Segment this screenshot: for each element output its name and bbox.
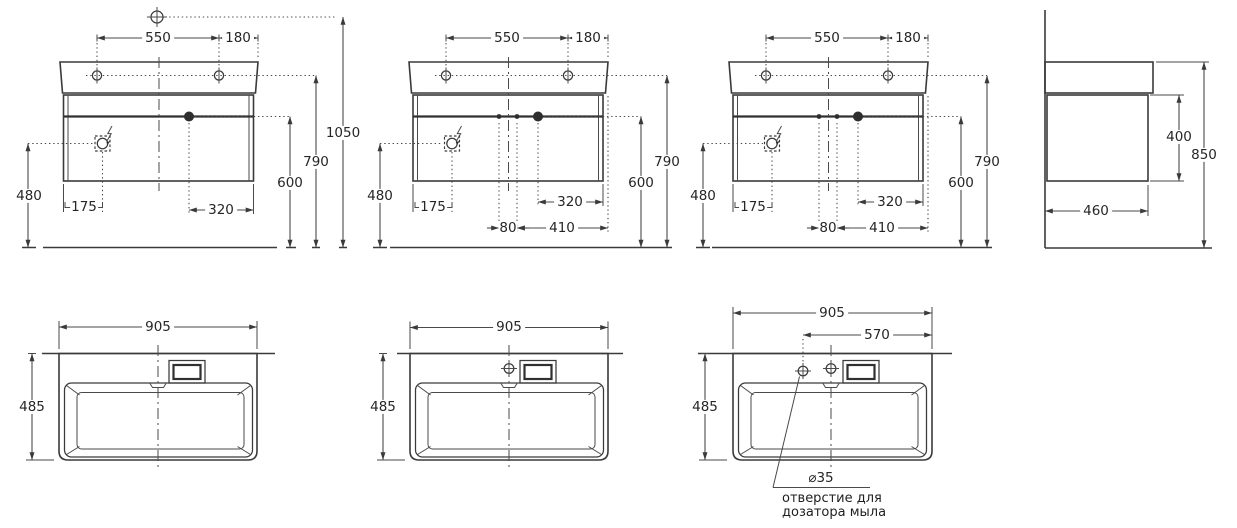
mount-dot-right <box>835 114 840 119</box>
dim-label-320-front1: 320 <box>205 203 237 217</box>
front-view-2 <box>373 35 672 248</box>
dim-label-905-top3: 905 <box>816 306 848 320</box>
dim-label-600-front1: 600 <box>274 176 306 190</box>
dim-label-410-front3: 410 <box>866 221 898 235</box>
mount-dot-left <box>497 114 502 119</box>
overflow-slot <box>823 384 839 388</box>
sink-profile <box>1045 62 1153 93</box>
dim-label-600-front3: 600 <box>945 176 977 190</box>
dim-label-850-side: 850 <box>1188 148 1220 162</box>
dim-label-790-front1: 790 <box>300 155 332 169</box>
dim-label-175-front3: 175 <box>739 200 767 214</box>
drawing-linework <box>0 0 1237 528</box>
top-view-2 <box>377 322 623 470</box>
dim-label-600-front2: 600 <box>625 176 657 190</box>
cabinet-profile <box>1047 95 1148 181</box>
overflow-slot <box>501 384 517 388</box>
dim-label-320-front2: 320 <box>554 195 586 209</box>
dim-label-400-side: 400 <box>1163 130 1195 144</box>
drain-dot <box>853 112 863 122</box>
overflow-box-icon <box>169 361 205 384</box>
dim-label-1050-front1: 1050 <box>323 126 363 140</box>
dim-label-485-top3: 485 <box>689 400 721 414</box>
soap-dispenser-hole-icon <box>795 363 811 379</box>
soap-dispenser-note-line2: дозатора мыла <box>782 506 886 520</box>
technical-drawing: 550 180 1050 790 600 480 175 320 550 180… <box>0 0 1237 528</box>
top-view-1-dimensions <box>26 321 257 460</box>
dim-label-790-front3: 790 <box>971 155 1003 169</box>
dim-label-480-front2: 480 <box>364 189 396 203</box>
soap-dispenser-note: отверстие для дозатора мыла <box>782 492 886 519</box>
overflow-slot <box>150 384 166 388</box>
top-view-2-dimensions <box>377 322 608 461</box>
basin-floor <box>751 393 918 450</box>
top-view-1 <box>26 321 275 469</box>
dim-label-790-front2: 790 <box>651 155 683 169</box>
dim-label-80-front2: 80 <box>498 221 517 235</box>
dim-label-480-front1: 480 <box>13 189 45 203</box>
mount-dot-left <box>817 114 822 119</box>
basin-floor <box>77 393 244 450</box>
dim-label-180-front1: 180 <box>222 31 254 45</box>
dim-label-175-front2: 175 <box>419 200 447 214</box>
front-view-3-dimensions <box>696 35 992 248</box>
dim-label-320-front3: 320 <box>874 195 906 209</box>
dim-label-905-top2: 905 <box>493 320 525 334</box>
drain-dot <box>184 112 194 122</box>
dim-label-hole-diameter: ⌀35 <box>805 471 836 485</box>
overflow-box-icon <box>843 361 879 384</box>
dim-label-480-front3: 480 <box>687 189 719 203</box>
leader-line <box>773 377 800 488</box>
basin-rim <box>739 383 927 457</box>
dim-label-550-front1: 550 <box>142 31 174 45</box>
dim-label-550-front3: 550 <box>811 31 843 45</box>
dim-label-410-front2: 410 <box>546 221 578 235</box>
dim-label-460-side: 460 <box>1080 204 1112 218</box>
dim-label-175-front1: 175 <box>70 200 98 214</box>
front-view-3 <box>696 35 992 248</box>
drain-dot <box>533 112 543 122</box>
overflow-box-icon <box>520 361 556 384</box>
dim-label-905-top1: 905 <box>142 320 174 334</box>
sink-plan-outline <box>733 354 932 461</box>
dim-label-550-front2: 550 <box>491 31 523 45</box>
mirror-mount-icon <box>147 7 167 27</box>
dim-label-180-front3: 180 <box>892 31 924 45</box>
basin-corner-bevels <box>741 386 925 455</box>
mount-dot-right <box>515 114 520 119</box>
dim-label-80-front3: 80 <box>818 221 837 235</box>
dim-label-485-top2: 485 <box>367 400 399 414</box>
soap-dispenser-note-line1: отверстие для <box>782 492 886 506</box>
dim-label-485-top1: 485 <box>16 400 48 414</box>
dim-label-180-front2: 180 <box>572 31 604 45</box>
dim-label-570-top3: 570 <box>861 328 893 342</box>
top-view-3 <box>698 307 952 488</box>
side-view-dimensions <box>1045 62 1212 248</box>
basin-floor <box>428 393 595 450</box>
